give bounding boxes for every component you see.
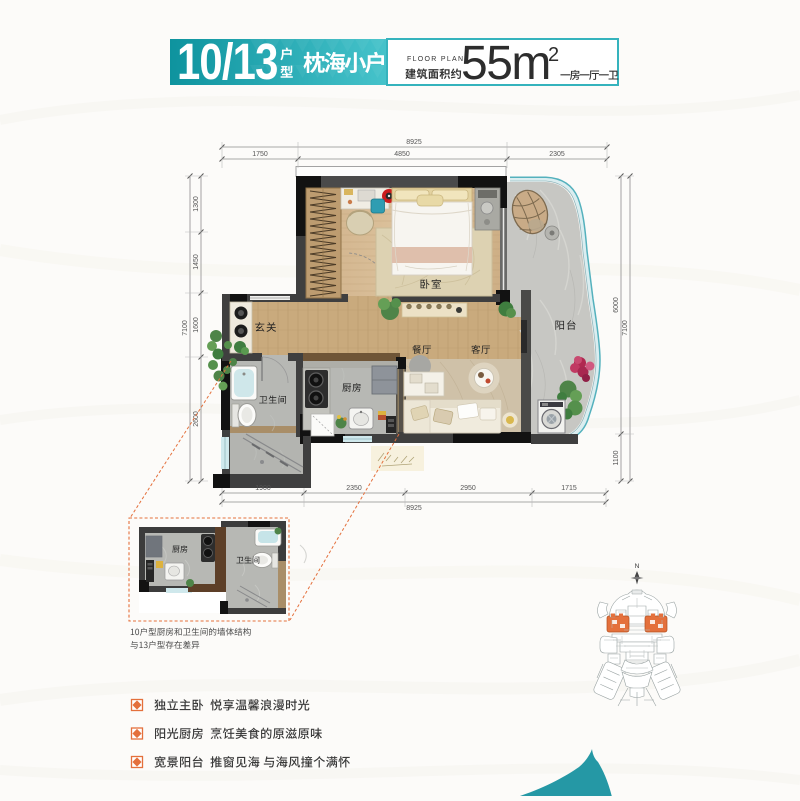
- svg-text:1750: 1750: [252, 151, 268, 158]
- svg-text:1600: 1600: [193, 317, 200, 333]
- svg-text:FLOOR PLAN: FLOOR PLAN: [407, 56, 464, 63]
- svg-text:1100: 1100: [613, 450, 620, 465]
- svg-text:7100: 7100: [182, 320, 189, 336]
- svg-text:2305: 2305: [549, 151, 565, 158]
- svg-text:4850: 4850: [394, 151, 410, 158]
- svg-text:1715: 1715: [561, 485, 577, 492]
- svg-text:1300: 1300: [193, 196, 200, 212]
- svg-text:2: 2: [548, 44, 559, 66]
- svg-text:8925: 8925: [406, 139, 422, 146]
- svg-text:N: N: [635, 563, 640, 570]
- svg-text:8925: 8925: [406, 505, 422, 512]
- svg-text:2350: 2350: [346, 485, 362, 492]
- svg-text:7100: 7100: [622, 320, 629, 336]
- svg-text:55m: 55m: [461, 37, 550, 90]
- svg-text:6000: 6000: [613, 297, 620, 313]
- svg-text:10/13: 10/13: [177, 33, 278, 90]
- svg-text:1450: 1450: [193, 254, 200, 270]
- svg-text:1900: 1900: [255, 485, 271, 492]
- svg-text:2950: 2950: [460, 485, 476, 492]
